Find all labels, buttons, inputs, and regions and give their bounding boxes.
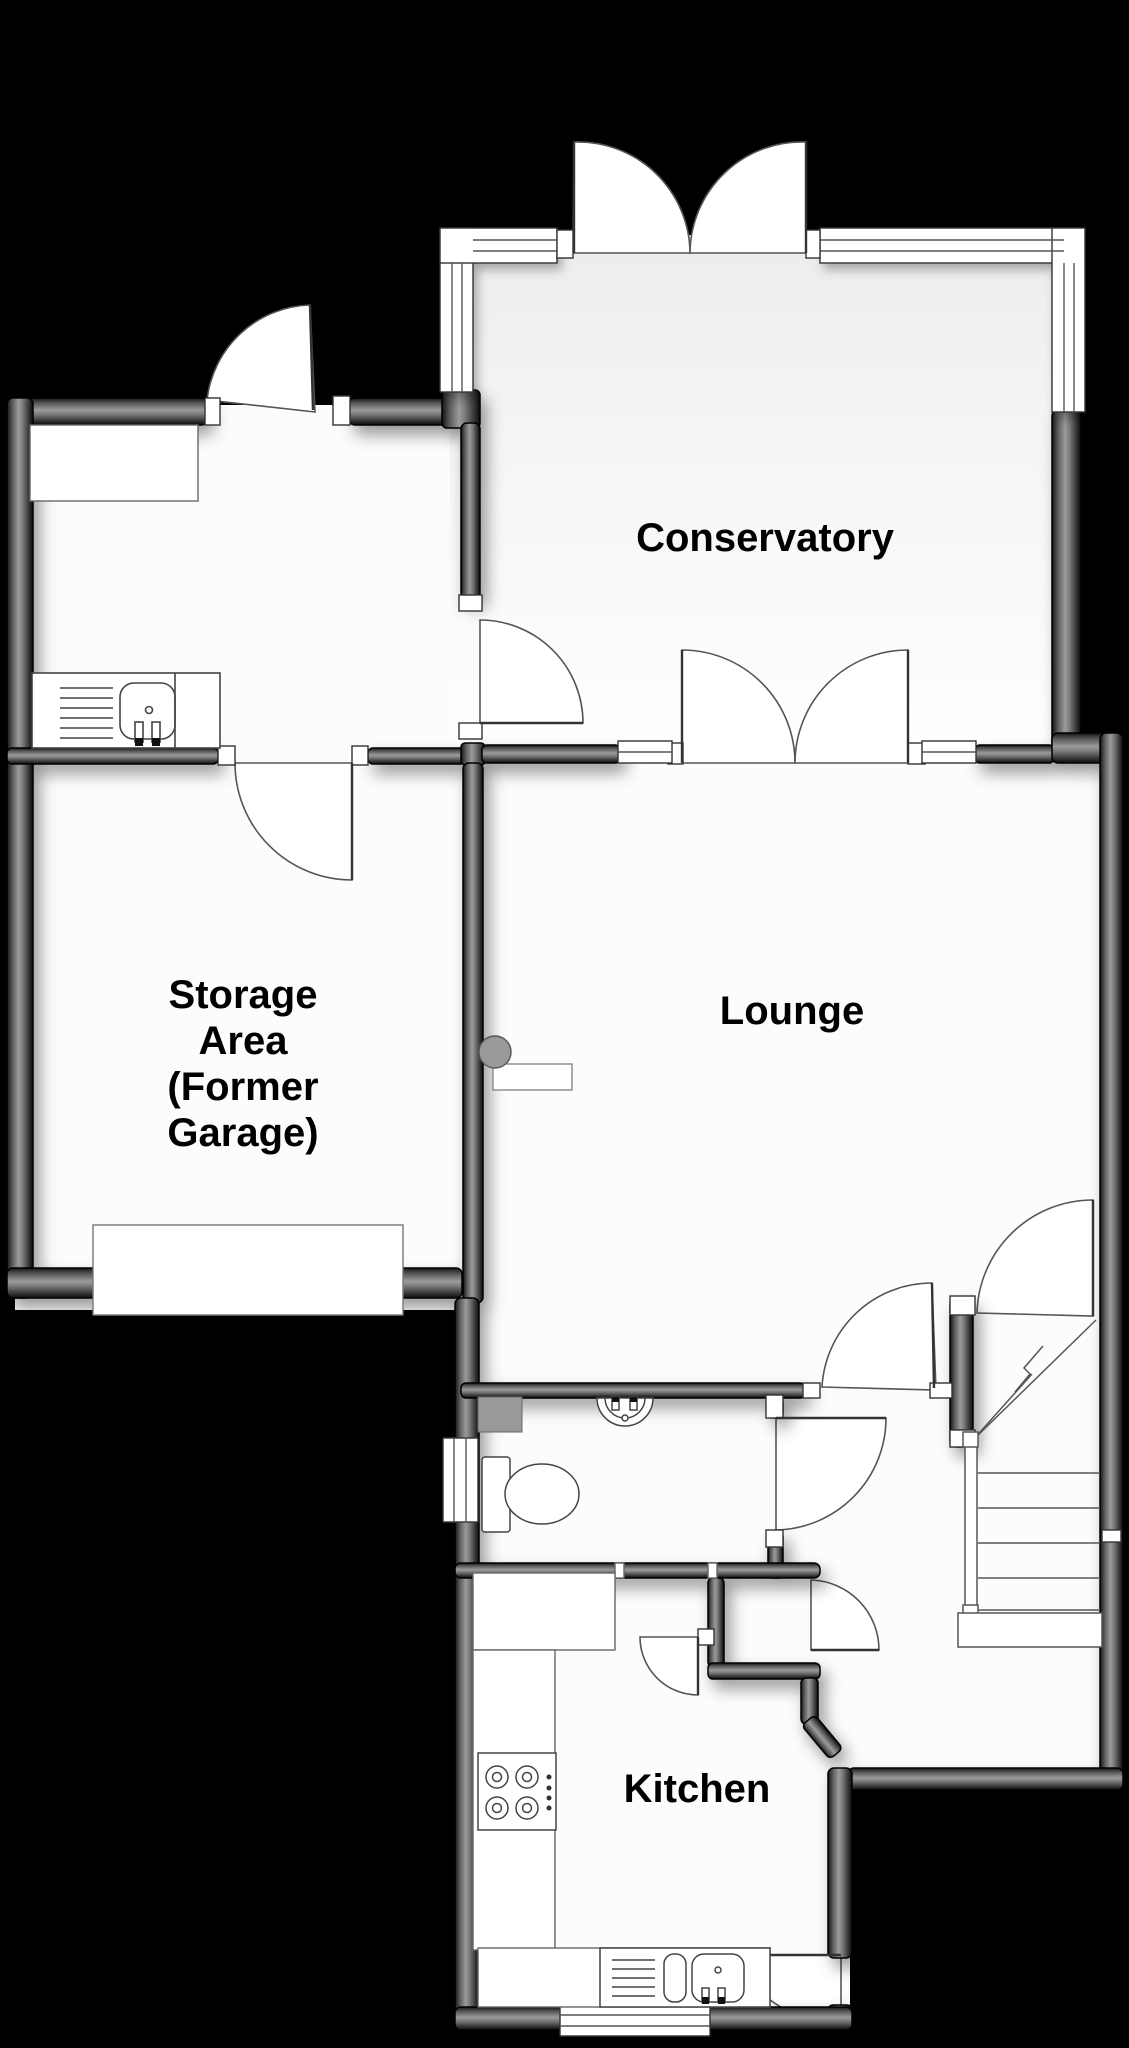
kitchen-sink bbox=[600, 1948, 770, 2007]
east-wall bbox=[1100, 733, 1123, 1790]
pocket-west-wall bbox=[708, 1578, 724, 1667]
cons-lounge-wall-right bbox=[975, 745, 1054, 763]
jamb bbox=[766, 1395, 783, 1418]
kitchen-hob bbox=[478, 1753, 556, 1830]
storage-lounge-wall bbox=[463, 763, 483, 1303]
kitchen-window bbox=[560, 2004, 710, 2036]
jamb bbox=[803, 1383, 820, 1398]
jamb bbox=[698, 1629, 714, 1645]
jamb bbox=[218, 746, 235, 765]
jamb bbox=[333, 396, 350, 425]
jamb bbox=[950, 1296, 975, 1315]
utility-counter bbox=[30, 425, 198, 501]
wc-window bbox=[443, 1438, 478, 1522]
storage-utility-floor bbox=[15, 405, 480, 1310]
pocket-south-wall bbox=[708, 1663, 820, 1679]
storage-label-line1: Storage bbox=[167, 972, 318, 1018]
jamb bbox=[205, 398, 220, 425]
storage-label-line3: (Former bbox=[167, 1064, 318, 1110]
utility-east-wall bbox=[461, 423, 480, 599]
jamb bbox=[459, 595, 482, 611]
conservatory-window-north-right bbox=[820, 228, 1077, 263]
storage-label-line4: Garage) bbox=[167, 1110, 318, 1156]
conservatory-french-door-right bbox=[690, 142, 806, 253]
cons-lounge-window-right bbox=[922, 741, 976, 763]
storage-label: Storage Area (Former Garage) bbox=[167, 972, 318, 1156]
wall-seam bbox=[708, 1563, 717, 1578]
jamb bbox=[766, 1530, 783, 1547]
west-wall bbox=[7, 398, 33, 1298]
utility-exterior-door bbox=[207, 305, 315, 412]
cons-lounge-window-left bbox=[618, 741, 672, 763]
wall-seam bbox=[1102, 1530, 1121, 1542]
utility-storage-wall bbox=[7, 748, 218, 764]
garage-door bbox=[93, 1225, 403, 1315]
jamb bbox=[806, 230, 820, 258]
stair-newel bbox=[963, 1432, 978, 1447]
wc-north-wall bbox=[461, 1383, 805, 1398]
conservatory-window-north-left bbox=[440, 228, 557, 263]
wc-duct bbox=[478, 1397, 522, 1432]
floor-plan: Conservatory Storage Area (Former Garage… bbox=[0, 0, 1129, 2048]
cons-lounge-wall-left bbox=[482, 745, 620, 763]
storage-label-line2: Area bbox=[167, 1018, 318, 1064]
hall-south-wall bbox=[848, 1768, 1123, 1790]
jamb bbox=[352, 746, 368, 765]
utility-top-wall bbox=[7, 398, 207, 425]
jamb bbox=[557, 230, 573, 258]
stairs-west-wall bbox=[950, 1298, 973, 1447]
kitchen-unit bbox=[473, 1573, 615, 1650]
lounge-label: Lounge bbox=[720, 988, 864, 1034]
stair-bottom-step bbox=[958, 1613, 1102, 1647]
kitchen-label: Kitchen bbox=[624, 1766, 771, 1812]
stair-stringer bbox=[965, 1441, 977, 1613]
wall-seam bbox=[615, 1563, 624, 1578]
utility-sink bbox=[32, 673, 220, 748]
conservatory-label: Conservatory bbox=[636, 515, 894, 561]
conservatory-east-wall bbox=[1052, 410, 1081, 750]
kitchen-east-wall bbox=[828, 1768, 852, 1958]
jamb bbox=[459, 723, 482, 739]
utility-storage-wall-right bbox=[368, 748, 465, 764]
conservatory-window-east bbox=[1052, 228, 1085, 412]
conservatory-french-door-left bbox=[573, 142, 690, 253]
